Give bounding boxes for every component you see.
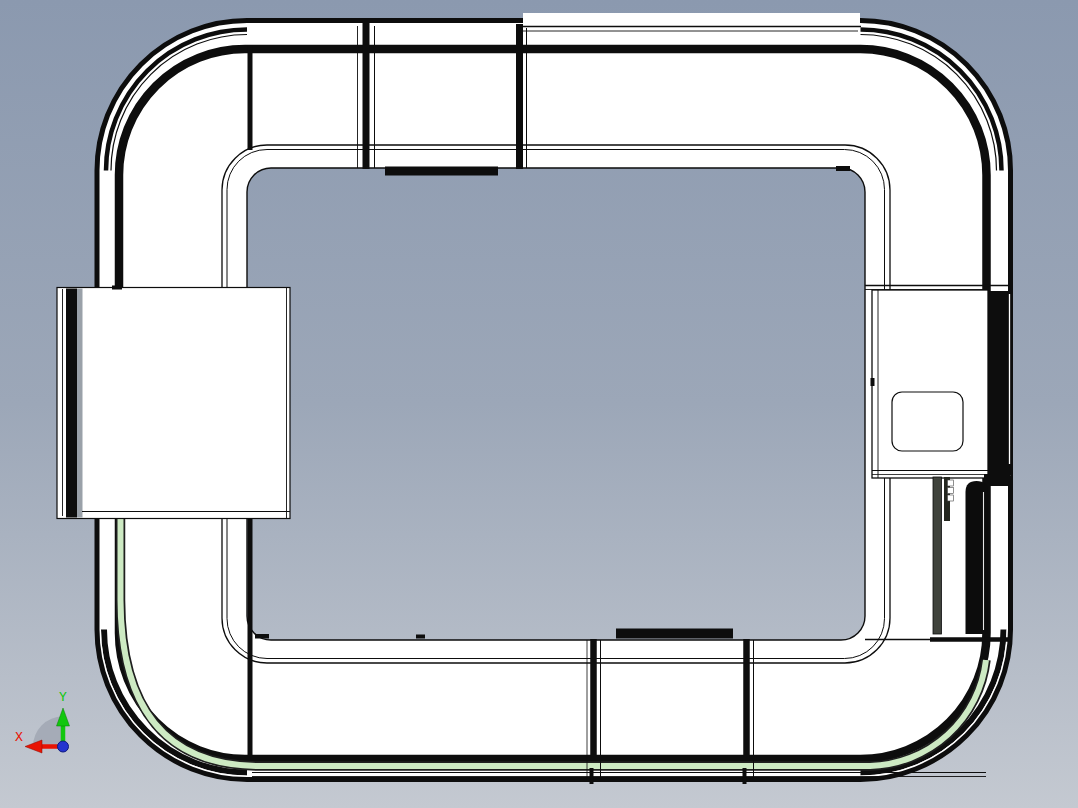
y-axis-label: Y bbox=[59, 689, 67, 704]
housing-left-notch bbox=[871, 378, 875, 386]
x-axis-label: X bbox=[15, 729, 23, 744]
left-station-block[interactable] bbox=[57, 286, 290, 519]
station-block-body[interactable] bbox=[57, 288, 290, 519]
block-top-tick bbox=[112, 286, 122, 290]
connector-tick-3 bbox=[948, 495, 954, 501]
tension-bar bbox=[933, 477, 942, 634]
bottom-mount-tick-1 bbox=[255, 634, 269, 639]
connector-tick-1 bbox=[948, 480, 954, 486]
model-view-canvas[interactable]: X Y bbox=[0, 0, 1078, 808]
cad-viewport[interactable]: X Y bbox=[0, 0, 1078, 808]
top-right-segment-cap bbox=[523, 13, 860, 25]
top-mount-bar bbox=[385, 167, 498, 176]
bottom-mount-bar bbox=[616, 629, 733, 639]
z-axis-origin-dot[interactable] bbox=[58, 741, 69, 752]
connector-tick-2 bbox=[948, 488, 954, 494]
block-edge-dark-strip bbox=[66, 289, 77, 518]
block-edge-gray-strip bbox=[77, 289, 83, 518]
top-mount-tick bbox=[836, 166, 850, 171]
housing-access-window bbox=[892, 392, 963, 451]
belt-slot bbox=[966, 481, 989, 634]
bottom-mount-tick-2 bbox=[416, 635, 425, 639]
